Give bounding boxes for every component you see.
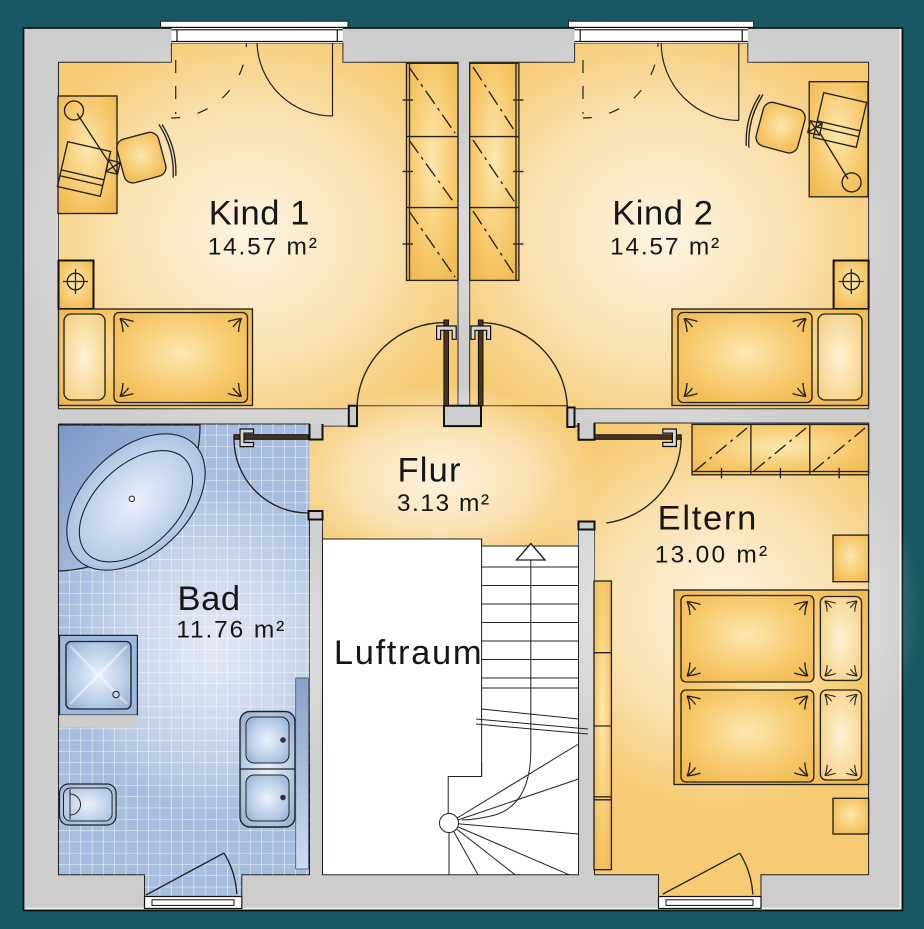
svg-text:Bad: Bad xyxy=(178,580,241,618)
svg-text:14.57 m²: 14.57 m² xyxy=(610,234,719,261)
svg-text:Flur: Flur xyxy=(398,452,461,490)
svg-text:14.57 m²: 14.57 m² xyxy=(208,234,317,261)
svg-text:Luftraum: Luftraum xyxy=(334,634,482,672)
svg-text:Kind 1: Kind 1 xyxy=(209,195,310,233)
svg-text:Eltern: Eltern xyxy=(658,500,757,538)
svg-text:13.00 m²: 13.00 m² xyxy=(655,542,767,569)
svg-text:Kind 2: Kind 2 xyxy=(612,195,713,233)
svg-text:11.76 m²: 11.76 m² xyxy=(176,616,284,643)
